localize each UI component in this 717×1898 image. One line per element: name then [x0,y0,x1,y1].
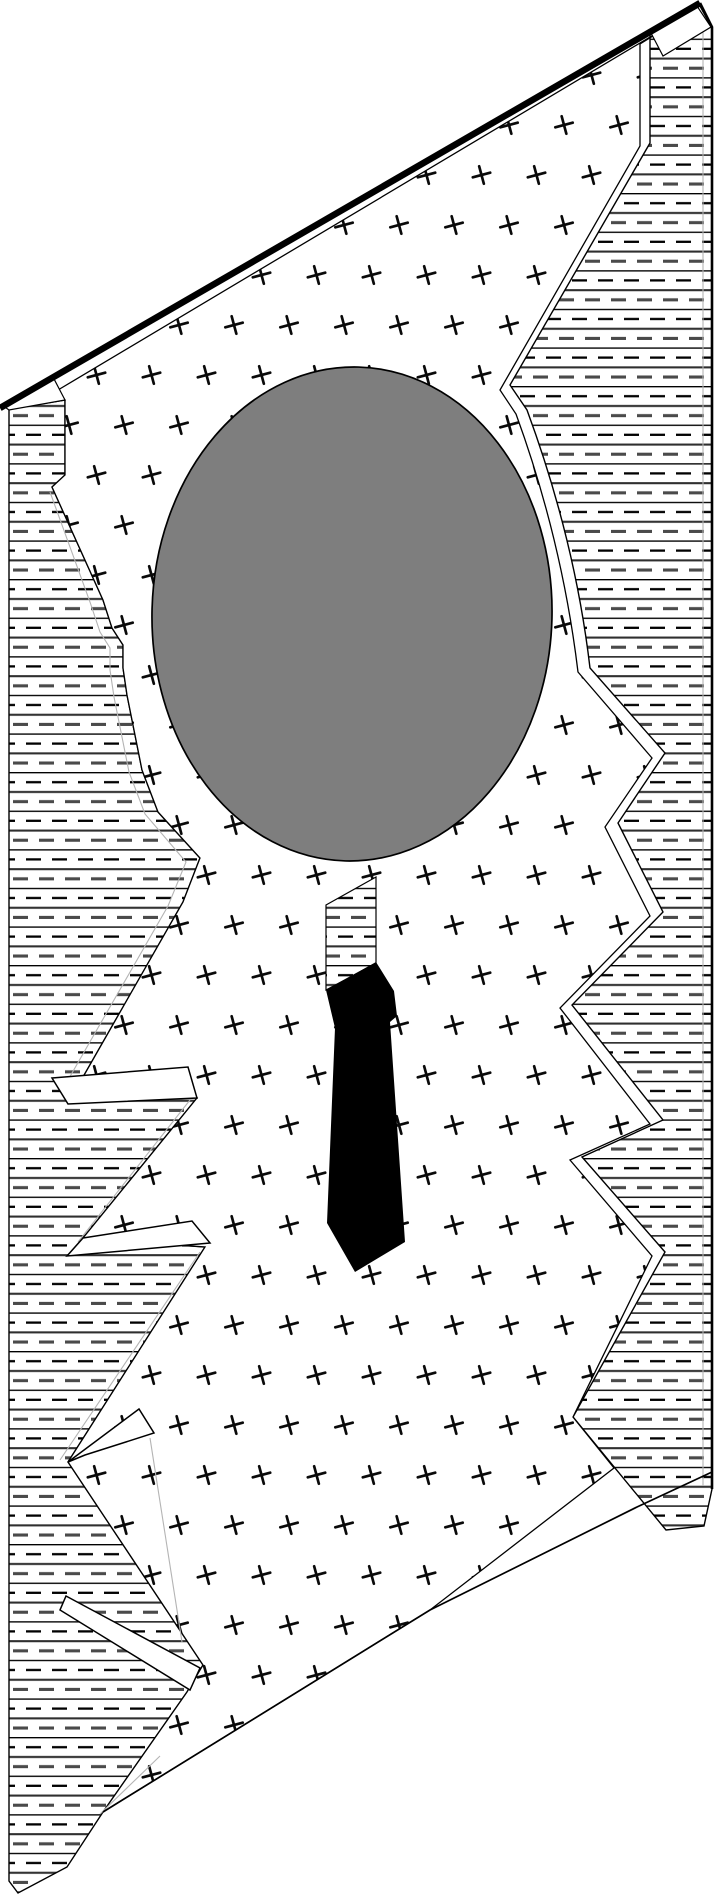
illustration-canvas [0,0,717,1898]
technical-illustration [0,0,717,1898]
shape-layer [0,3,712,1893]
necktie [326,962,405,1272]
